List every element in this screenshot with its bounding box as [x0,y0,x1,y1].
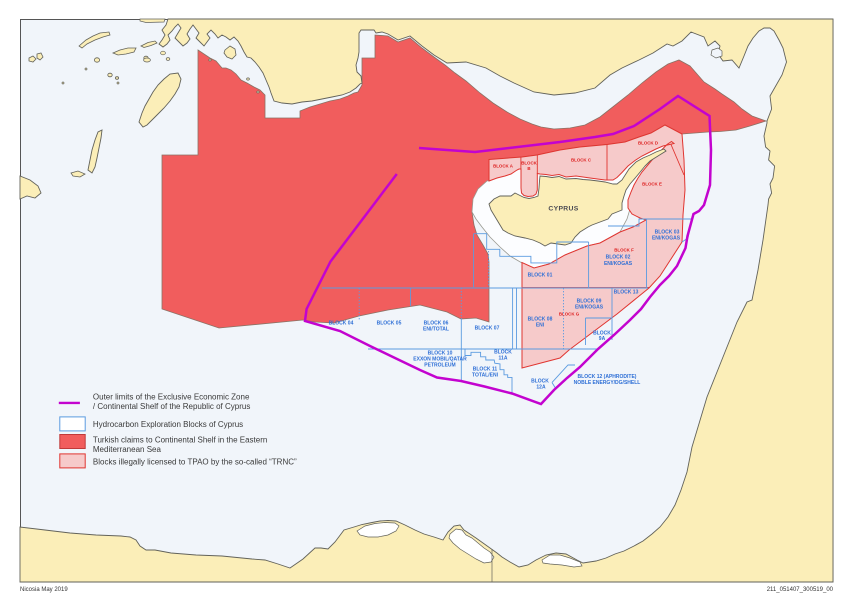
svg-text:BLOCK E: BLOCK E [642,182,662,187]
svg-text:211_051407_300519_00: 211_051407_300519_00 [767,587,834,593]
svg-text:Nicosia May 2019: Nicosia May 2019 [20,587,68,593]
svg-text:BLOCK 11TOTAL/ENI: BLOCK 11TOTAL/ENI [472,367,499,379]
svg-text:Outer limits of the Exclusive: Outer limits of the Exclusive Economic Z… [93,393,250,412]
svg-text:BLOCK F: BLOCK F [614,248,634,253]
svg-text:BLOCK 01: BLOCK 01 [528,273,553,279]
svg-text:BLOCK G: BLOCK G [559,312,580,317]
svg-text:BLOCK 02ENI/KOGAS: BLOCK 02ENI/KOGAS [604,255,633,268]
svg-text:BLOCK A: BLOCK A [493,164,514,169]
svg-text:BLOCK D: BLOCK D [638,141,658,146]
svg-text:BLOCK 04: BLOCK 04 [329,321,354,327]
svg-text:BLOCK 13: BLOCK 13 [614,290,639,296]
svg-text:Hydrocarbon Exploration Blocks: Hydrocarbon Exploration Blocks of Cyprus [93,420,243,429]
svg-text:CYPRUS: CYPRUS [548,206,578,213]
svg-text:Blocks illegally licensed to T: Blocks illegally licensed to TPAO by the… [93,458,297,467]
svg-text:BLOCK 03ENI/KOGAS: BLOCK 03ENI/KOGAS [652,230,681,242]
svg-text:BLOCK 12 (APHRODITE)NOBLE ENER: BLOCK 12 (APHRODITE)NOBLE ENERGY/DG/SHEL… [574,374,641,386]
svg-text:BLOCK 05: BLOCK 05 [377,321,402,327]
svg-text:BLOCK 09ENI/KOGAS: BLOCK 09ENI/KOGAS [575,299,604,311]
svg-text:BLOCK 07: BLOCK 07 [475,326,500,332]
svg-text:BLOCK 06ENI/TOTAL: BLOCK 06ENI/TOTAL [423,321,449,333]
svg-text:BLOCK C: BLOCK C [571,158,592,163]
